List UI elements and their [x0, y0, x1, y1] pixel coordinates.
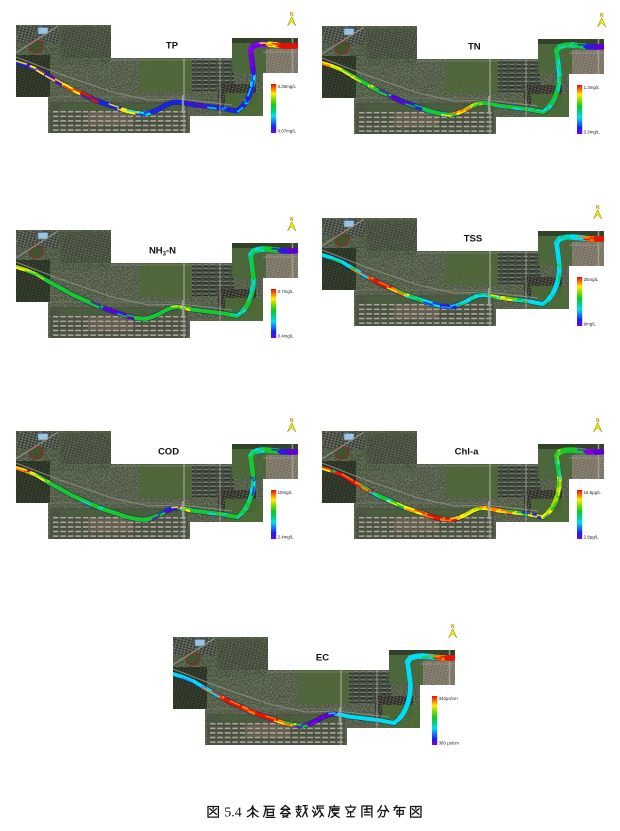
svg-text:0.7mg/L: 0.7mg/L [278, 289, 294, 294]
svg-text:25mg/L: 25mg/L [583, 277, 598, 282]
svg-text:COD: COD [158, 447, 179, 458]
svg-text:TSS: TSS [463, 234, 481, 245]
svg-text:1.3mg/L: 1.3mg/L [583, 85, 599, 90]
svg-text:TN: TN [467, 41, 480, 52]
svg-text:9mg/L: 9mg/L [583, 322, 596, 327]
svg-text:TP: TP [166, 41, 179, 52]
svg-text:2.8μg/L: 2.8μg/L [583, 534, 598, 539]
svg-text:10mg/L: 10mg/L [278, 490, 293, 495]
svg-text:5.4: 5.4 [224, 806, 242, 821]
svg-text:0.3mg/L: 0.3mg/L [583, 129, 599, 134]
svg-text:340μs/cm: 340μs/cm [439, 696, 458, 701]
svg-text:NH3-N: NH3-N [149, 245, 176, 257]
svg-text:0.07mg/L: 0.07mg/L [278, 129, 297, 134]
svg-text:0.35mg/L: 0.35mg/L [278, 84, 297, 89]
svg-text:2.4mg/L: 2.4mg/L [278, 535, 294, 540]
svg-text:Chl-a: Chl-a [454, 446, 478, 457]
svg-text:380 μs/cm: 380 μs/cm [439, 741, 460, 746]
svg-text:EC: EC [316, 653, 329, 664]
svg-text:0.4mg/L: 0.4mg/L [278, 333, 294, 338]
svg-text:16.5μg/L: 16.5μg/L [583, 490, 601, 495]
